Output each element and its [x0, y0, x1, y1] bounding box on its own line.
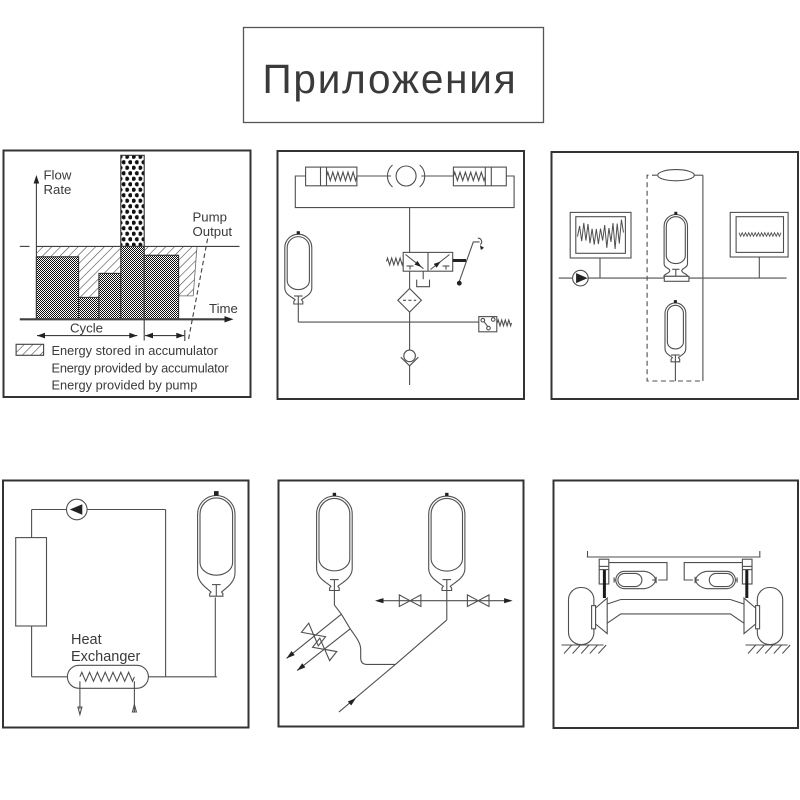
svg-text:Exchanger: Exchanger [71, 649, 140, 665]
svg-text:Cycle: Cycle [70, 321, 103, 336]
svg-text:Time: Time [209, 301, 238, 316]
svg-text:Приложения: Приложения [263, 56, 518, 102]
svg-text:Energy stored in accumulator: Energy stored in accumulator [52, 343, 219, 358]
svg-text:Output: Output [193, 224, 233, 239]
svg-text:Heat: Heat [71, 632, 102, 648]
svg-text:Rate: Rate [44, 182, 72, 197]
svg-text:Flow: Flow [44, 168, 72, 183]
svg-text:Energy provided by pump: Energy provided by pump [52, 378, 198, 393]
svg-text:Pump: Pump [193, 210, 227, 225]
svg-text:Energy provided by accumulator: Energy provided by accumulator [52, 360, 230, 375]
